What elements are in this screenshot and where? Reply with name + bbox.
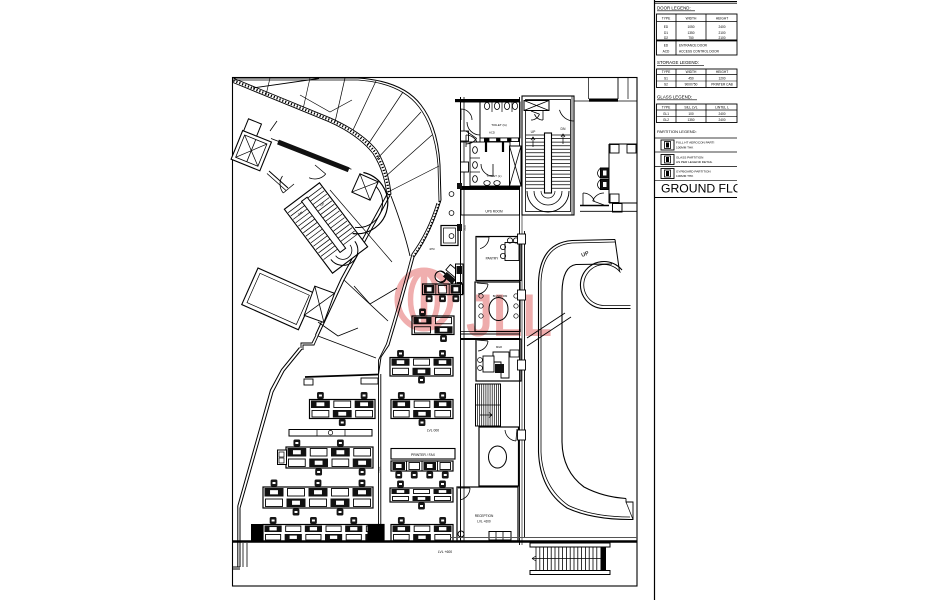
svg-text:WIDTH: WIDTH <box>686 17 697 21</box>
svg-text:ED: ED <box>664 25 669 29</box>
svg-text:LVL 000: LVL 000 <box>427 429 439 433</box>
svg-text:ACD: ACD <box>489 131 495 135</box>
svg-text:HEIGHT: HEIGHT <box>716 17 728 21</box>
svg-text:DN: DN <box>561 127 566 131</box>
svg-text:LVL +600: LVL +600 <box>477 520 491 524</box>
svg-text:2400: 2400 <box>718 118 725 122</box>
svg-text:GLASS LEGEND:: GLASS LEGEND: <box>657 95 692 100</box>
svg-text:WIDTH: WIDTH <box>686 70 697 74</box>
svg-text:PARTITION LEGEND:: PARTITION LEGEND: <box>657 129 697 134</box>
svg-text:UPS ROOM: UPS ROOM <box>485 210 503 214</box>
svg-text:1350: 1350 <box>687 118 694 122</box>
svg-text:900X750: 900X750 <box>685 83 698 87</box>
svg-text:GL1: GL1 <box>663 112 669 116</box>
svg-text:1200: 1200 <box>718 76 725 80</box>
svg-text:100: 100 <box>688 112 694 116</box>
svg-text:PRINTER CAB: PRINTER CAB <box>711 83 732 87</box>
svg-text:2500: 2500 <box>464 225 467 231</box>
svg-text:2100: 2100 <box>718 36 725 40</box>
svg-text:TYPE: TYPE <box>662 17 671 21</box>
svg-text:1350: 1350 <box>687 31 694 35</box>
svg-text:STORAGE LEGEND:: STORAGE LEGEND: <box>657 60 699 65</box>
svg-text:GLASS PARTITION: GLASS PARTITION <box>676 155 703 159</box>
svg-text:JLL: JLL <box>466 282 552 349</box>
svg-text:100MM THK: 100MM THK <box>676 145 694 149</box>
svg-text:4850: 4850 <box>429 247 435 251</box>
svg-text:SILL LVL: SILL LVL <box>684 106 697 110</box>
svg-text:2400: 2400 <box>718 112 725 116</box>
svg-text:AS PER LEGEND DETAIL: AS PER LEGEND DETAIL <box>676 160 713 164</box>
svg-text:ENTRANCE DOOR: ENTRANCE DOOR <box>679 44 708 48</box>
svg-text:ACD: ACD <box>663 49 670 53</box>
svg-text:TOILET (G): TOILET (G) <box>491 123 507 127</box>
svg-text:100MM THK: 100MM THK <box>676 174 694 178</box>
svg-text:750: 750 <box>688 36 694 40</box>
svg-text:S1: S1 <box>664 76 668 80</box>
svg-text:2100: 2100 <box>718 31 725 35</box>
svg-text:DOOR LEGEND:: DOOR LEGEND: <box>657 6 691 11</box>
svg-text:2400: 2400 <box>718 25 725 29</box>
svg-text:D1: D1 <box>664 31 668 35</box>
svg-text:D2: D2 <box>664 36 668 40</box>
svg-text:ACCESS CONTROL DOOR: ACCESS CONTROL DOOR <box>679 49 720 53</box>
svg-text:S2: S2 <box>664 83 668 87</box>
svg-text:1050: 1050 <box>687 25 694 29</box>
svg-text:GL2: GL2 <box>663 118 669 122</box>
svg-text:ED: ED <box>664 44 669 48</box>
svg-text:GYPBOARD PARTITION: GYPBOARD PARTITION <box>676 169 711 173</box>
svg-text:RECEPTION: RECEPTION <box>475 514 494 518</box>
svg-text:TOILET (L): TOILET (L) <box>487 174 502 178</box>
svg-text:LINTEL L: LINTEL L <box>715 106 729 110</box>
svg-text:UP: UP <box>531 130 536 134</box>
svg-text:PANTRY: PANTRY <box>486 257 500 261</box>
svg-text:TYPE: TYPE <box>662 106 671 110</box>
svg-text:TYPE: TYPE <box>662 70 671 74</box>
svg-text:PRINTER / FAX: PRINTER / FAX <box>411 453 436 457</box>
svg-text:450: 450 <box>688 76 694 80</box>
svg-text:HEIGHT: HEIGHT <box>716 70 728 74</box>
svg-text:LVL +600: LVL +600 <box>438 550 452 554</box>
svg-text:FULL HT AEROCON PARTI: FULL HT AEROCON PARTI <box>676 141 715 145</box>
svg-text:11500: 11500 <box>379 466 382 473</box>
